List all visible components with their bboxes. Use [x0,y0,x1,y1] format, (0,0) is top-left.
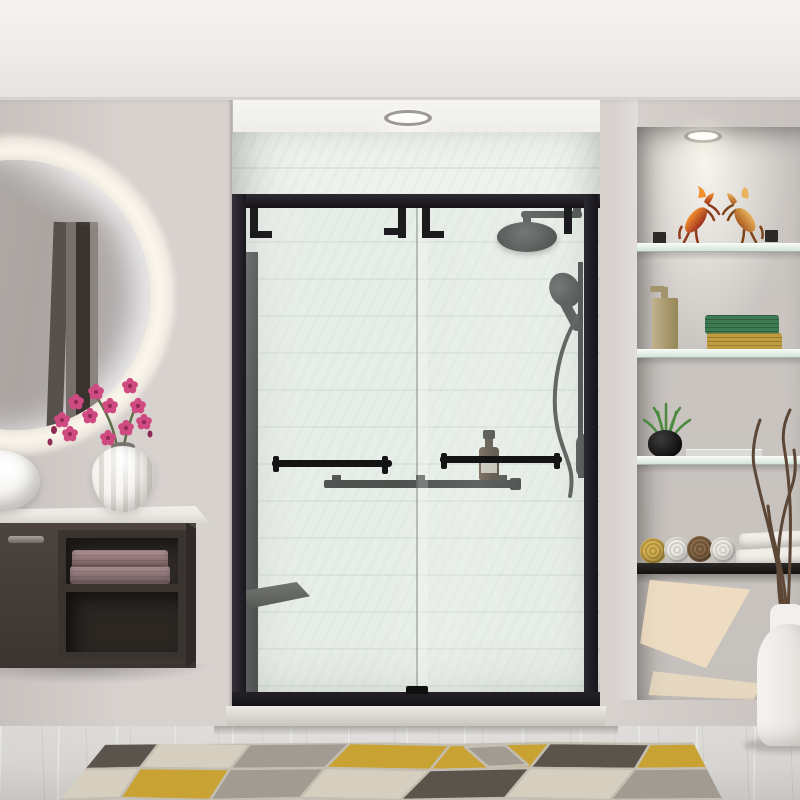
shelf-shadow [637,357,800,366]
curb-floor-shadow [214,726,618,735]
mauve-towel [72,550,168,567]
shower-frame-bottom-rail [232,692,600,706]
pink-orchid [40,372,156,456]
vanity-side-panel [186,522,196,668]
shower-threshold-curb [226,706,606,727]
geometric-rug [50,738,740,800]
vanity-shelf-lower [66,592,178,652]
towel-bar-bracket [441,453,447,469]
towel-bar-bracket [554,453,560,469]
door-roller-foot [422,231,444,238]
rug-pattern [50,738,740,800]
door-bottom-guide [406,686,428,694]
door-towel-bar-left [272,460,392,467]
mirror-ceiling-reflection [0,160,150,230]
woven-towel-green [705,315,779,334]
ceiling [0,0,800,102]
bathroom-scene [0,0,800,800]
glass-shelf-mount [765,230,778,242]
shelf-shadow [637,251,800,260]
door-roller-foot [384,228,406,235]
rolled-towel-yellow [640,538,666,564]
door-towel-bar-right [440,456,562,463]
drawer-handle [8,536,44,543]
door-roller-foot [250,231,272,238]
shower-frame-left-jamb [232,194,246,708]
door-roller-hanger [564,208,572,234]
glass-door-overlap-seam [416,207,428,694]
rolled-towel-white [710,537,736,563]
recessed-ceiling-light-lens [388,113,428,123]
shower-frame-right-jamb [584,194,598,708]
towel-bar-bracket [273,456,279,472]
niche-recessed-light-lens [688,132,718,140]
dry-twigs [744,406,800,616]
horse-figurines [676,186,768,244]
towel-bar-bracket [382,456,388,474]
right-pillar-highlight [612,100,638,700]
mauve-towel [70,566,170,584]
shower-frame-header [232,194,600,208]
black-plant-pot [648,430,682,458]
white-floor-vase [757,624,800,746]
brass-soap-dispenser [652,298,678,352]
shower-glass-panel [246,207,584,694]
